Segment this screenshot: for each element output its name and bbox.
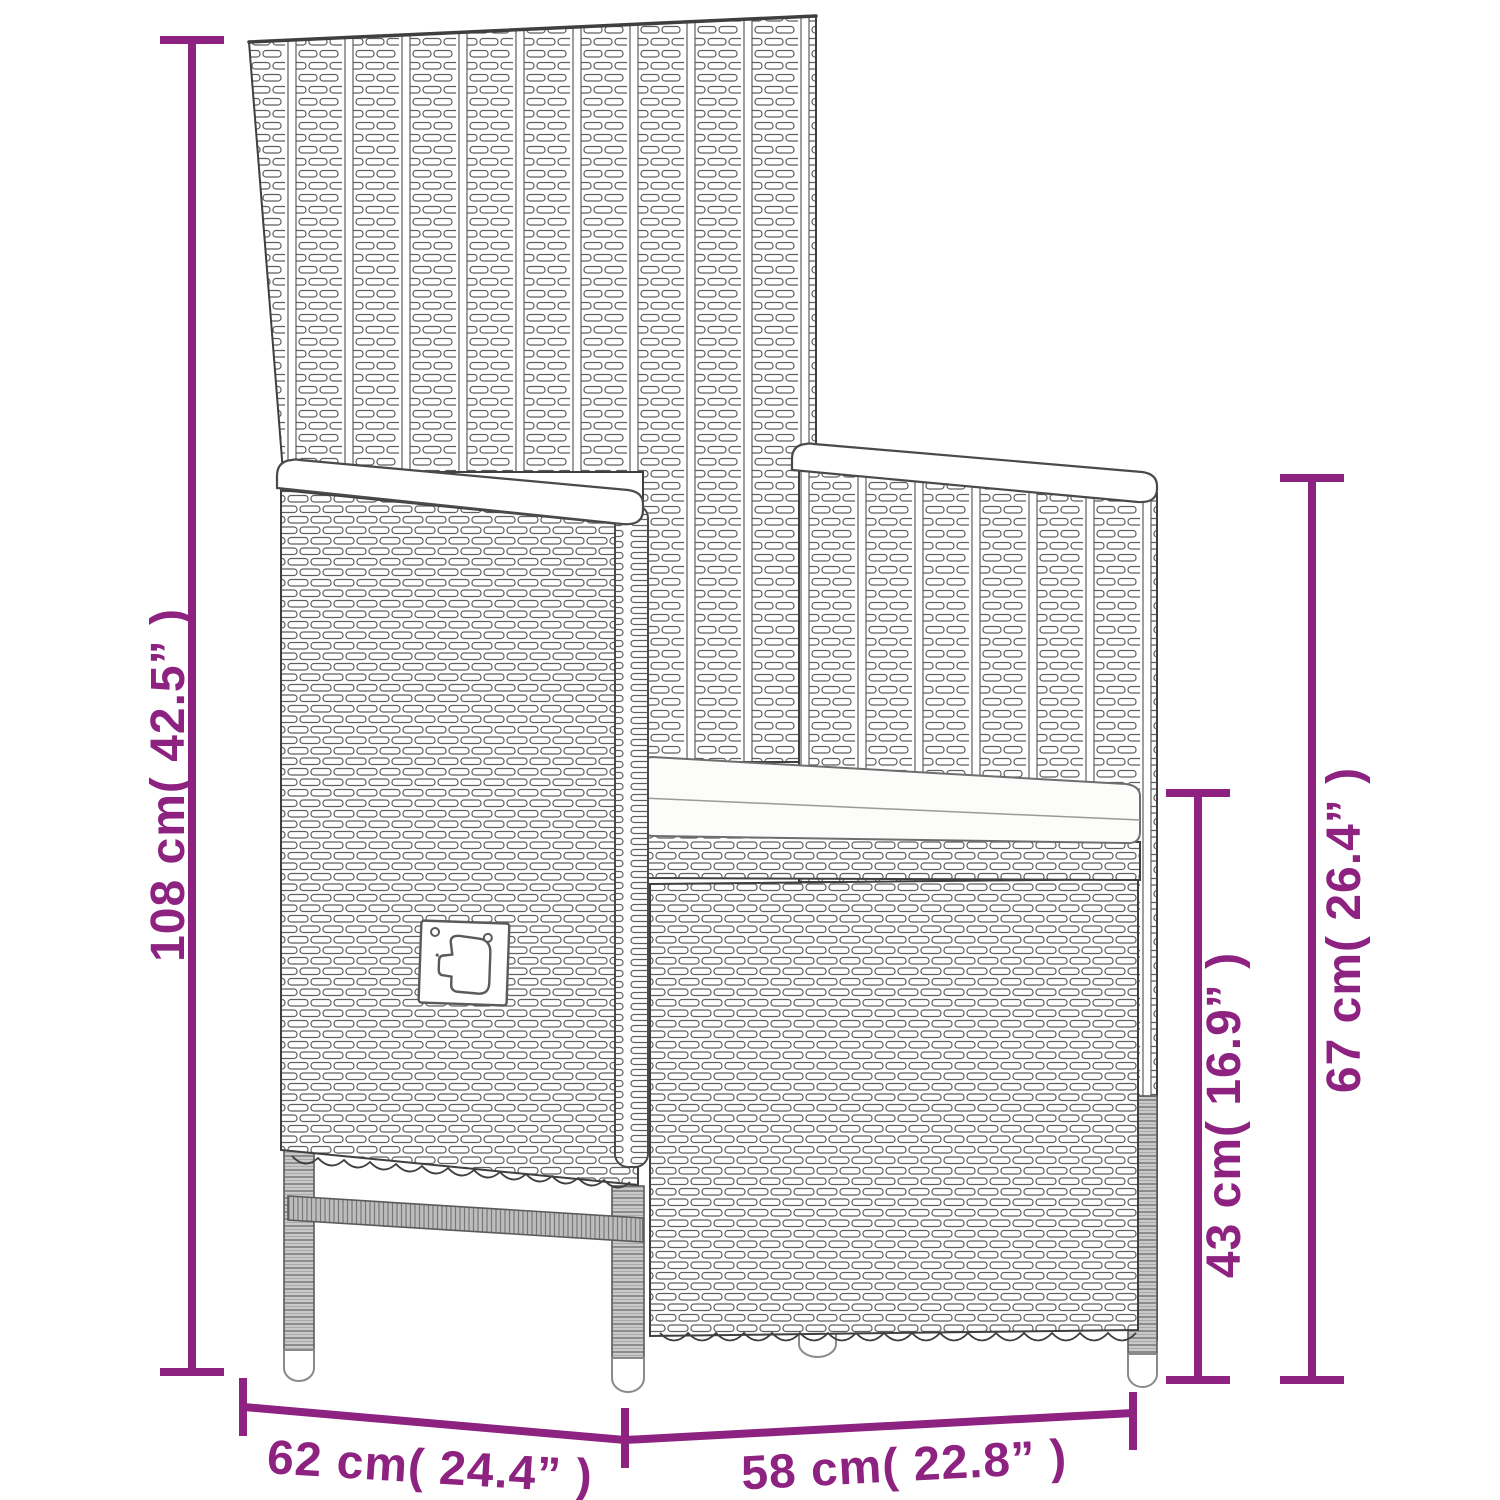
front-right-foot [1128, 1354, 1157, 1387]
diagram-canvas: 108 cm( 42.5” ) 67 cm( 26.4” ) 43 cm( 16… [0, 0, 1500, 1500]
left-arm-front-strip [615, 505, 648, 1167]
seat-height-dimension-label: 43 cm( 16.9” ) [1198, 952, 1251, 1278]
dimension-diagram: 108 cm( 42.5” ) 67 cm( 26.4” ) 43 cm( 16… [0, 0, 1500, 1500]
armrest-height-dimension-label: 67 cm( 26.4” ) [1318, 767, 1371, 1093]
chair-illustration [249, 16, 1157, 1392]
height-dimension-label: 108 cm( 42.5” ) [142, 608, 195, 962]
left-stretcher-bar [288, 1196, 643, 1242]
rear-left-foot [284, 1350, 314, 1381]
recline-knob [419, 921, 510, 1006]
depth-dimension-label: 62 cm( 24.4” ) [266, 1431, 595, 1500]
width-dimension-label: 58 cm( 22.8” ) [740, 1431, 1068, 1500]
chair-left-arm-panel [281, 490, 638, 1185]
seat-front-panel [650, 879, 1138, 1336]
front-left-foot [612, 1358, 644, 1392]
rear-left-leg [284, 1148, 314, 1352]
front-left-leg [612, 1186, 644, 1360]
